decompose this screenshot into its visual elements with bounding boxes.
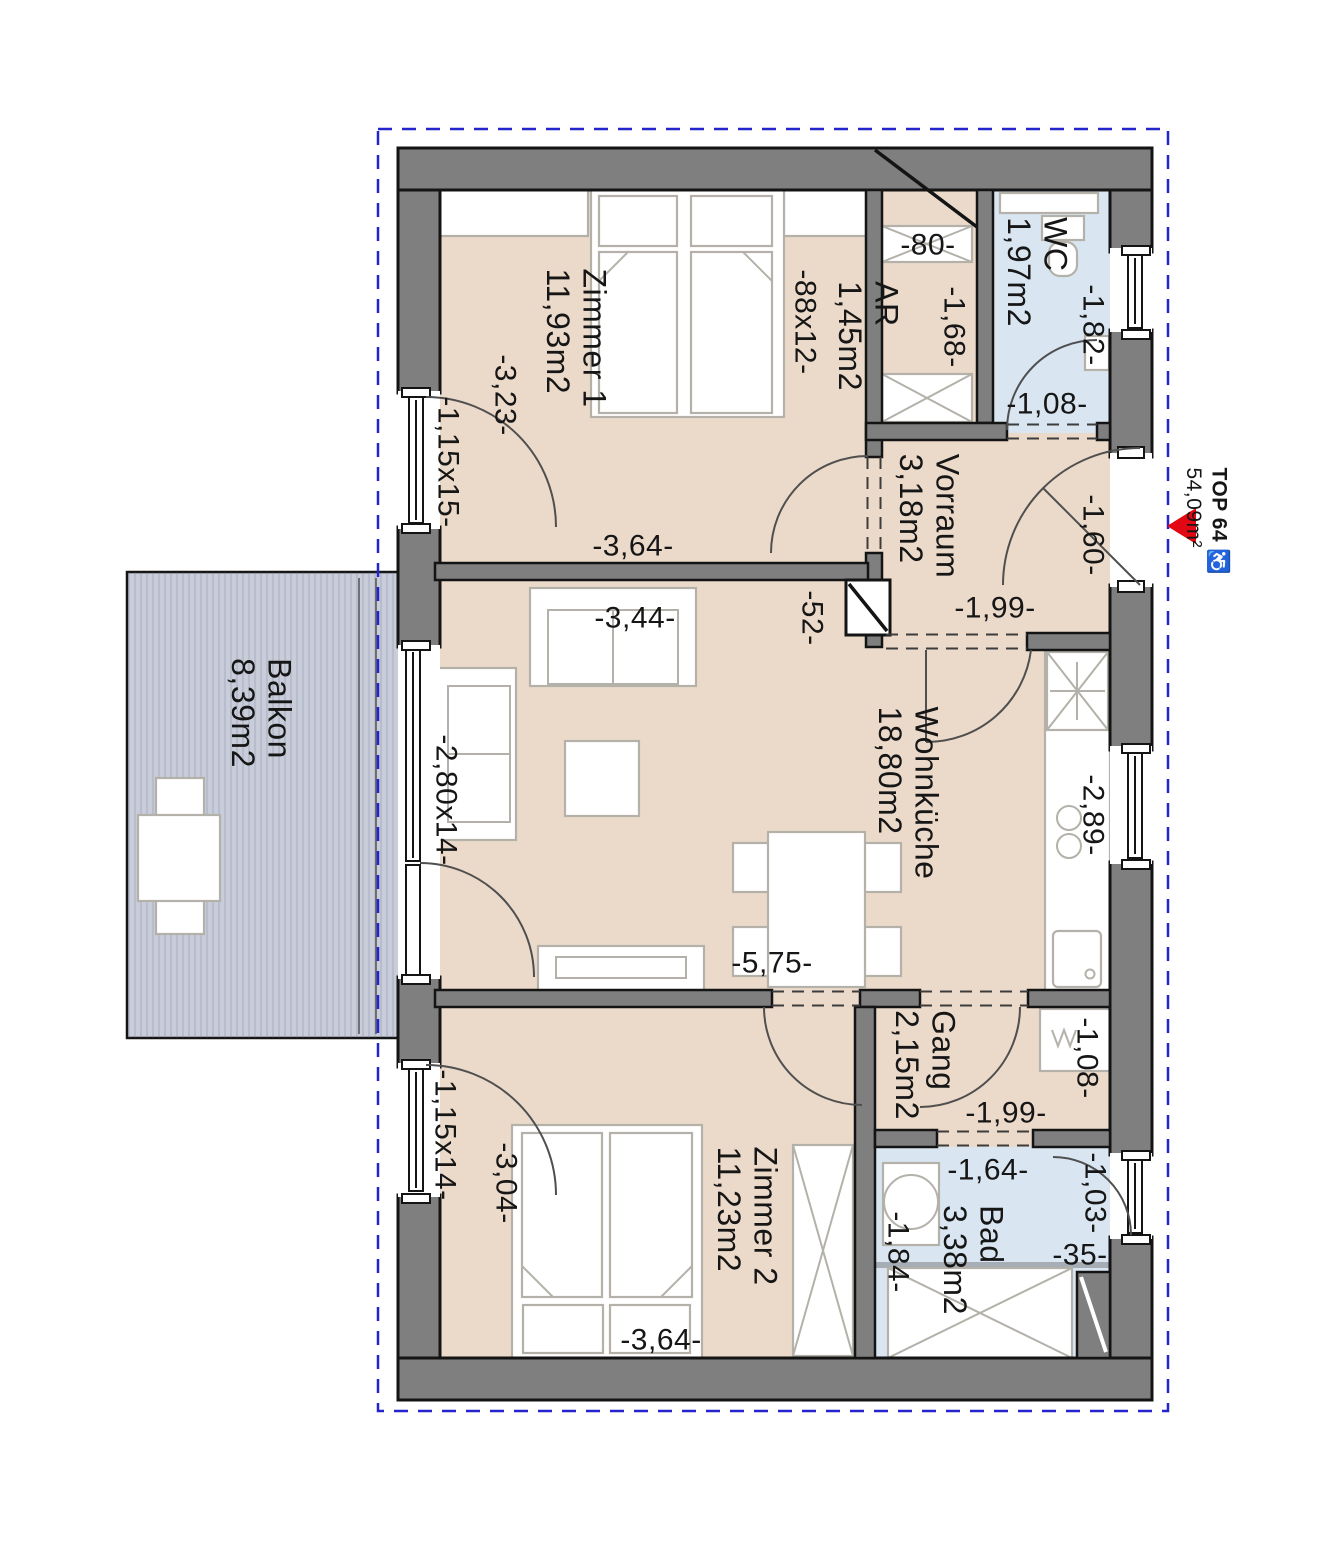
room-label-wc: WC 1,97m2 [1001, 217, 1074, 327]
dim-z1-parapet: -88x12- [789, 269, 822, 374]
dim-ar-depth: -1,68- [938, 286, 971, 367]
room-name: Vorraum [929, 454, 965, 578]
room-name: Wohnküche [908, 707, 944, 880]
room-area: 3,38m2 [937, 1205, 973, 1315]
room-label-wohnkueche: Wohnküche 18,80m2 [872, 707, 945, 880]
floorplan-drawing [0, 0, 1332, 1548]
room-name: AR [868, 281, 904, 391]
balcony [127, 572, 400, 1038]
dim-wc-depth: -1,82- [1077, 284, 1110, 365]
wardrobe [438, 190, 588, 236]
balcony-table [138, 815, 220, 901]
wardrobe [784, 190, 866, 236]
dim-vorraum-width: -1,99- [954, 592, 1035, 625]
room-area: 11,23m2 [711, 1146, 747, 1285]
room-area: 1,97m2 [1001, 217, 1037, 327]
dim-z1-width: -3,23- [489, 354, 522, 435]
unit-name: TOP 64 ♿ [1206, 467, 1232, 574]
dim-z2-length: -3,64- [620, 1324, 701, 1357]
room-label-vorraum: Vorraum 3,18m2 [893, 454, 966, 578]
dim-wc-door: -1,08- [1006, 388, 1087, 421]
room-area: 2,15m2 [889, 1010, 925, 1120]
dim-z1-length: -3,64- [592, 530, 673, 563]
room-area: 11,93m2 [540, 268, 576, 407]
room-label-ar: AR 1,45m2 [832, 281, 905, 391]
floorplan-canvas: Zimmer 1 11,93m2 AR 1,45m2 WC 1,97m2 Vor… [0, 0, 1332, 1548]
dim-gang-niche: -1,08- [1071, 1017, 1104, 1098]
dim-sofa: -3,44- [594, 602, 675, 635]
room-name: Bad [973, 1205, 1009, 1315]
dim-z1-window: -1,15x15- [432, 396, 465, 527]
dim-balcony-door: -2,80x14- [430, 734, 463, 865]
dim-gang-width: -1,99- [965, 1097, 1046, 1130]
room-area: 8,39m2 [225, 658, 261, 768]
room-area: 3,18m2 [893, 454, 929, 578]
room-label-zimmer1: Zimmer 1 11,93m2 [540, 268, 613, 407]
kitchen-sink [1053, 931, 1101, 987]
dim-bad-width: -1,64- [947, 1154, 1028, 1187]
coffee-table [565, 741, 639, 816]
room-name: WC [1037, 217, 1073, 327]
sideboard [538, 946, 704, 992]
dim-bad-niche: -35- [1052, 1239, 1107, 1272]
room-name: Gang [925, 1010, 961, 1120]
accessible-icon: ♿ [1208, 548, 1231, 574]
room-name: Zimmer 1 [576, 268, 612, 407]
shaft [1077, 1272, 1110, 1358]
room-label-balkon: Balkon 8,39m2 [225, 658, 298, 768]
dim-niche: -52- [796, 590, 829, 645]
dim-wk-length: -5,75- [731, 947, 812, 980]
unit-label: TOP 64 ♿ 54,09m² [1180, 467, 1231, 574]
unit-area: 54,09m² [1180, 467, 1206, 574]
room-label-zimmer2: Zimmer 2 11,23m2 [711, 1146, 784, 1285]
dim-ar-width: -80- [900, 229, 955, 262]
dim-bad-depth: -1,84- [882, 1211, 915, 1292]
room-name: Zimmer 2 [747, 1146, 783, 1285]
dim-z2-width: -3,04- [490, 1142, 523, 1223]
room-area: 18,80m2 [872, 707, 908, 880]
dim-bad-door: -1,03- [1079, 1152, 1112, 1233]
dim-entrance-door: -1,60- [1077, 494, 1110, 575]
room-label-bad: Bad 3,38m2 [937, 1205, 1010, 1315]
dim-kitchen: -2,89- [1077, 774, 1110, 855]
room-label-gang: Gang 2,15m2 [889, 1010, 962, 1120]
room-area: 1,45m2 [832, 281, 868, 391]
room-name: Balkon [261, 658, 297, 768]
dim-z2-window: -1,15x14- [429, 1069, 462, 1200]
